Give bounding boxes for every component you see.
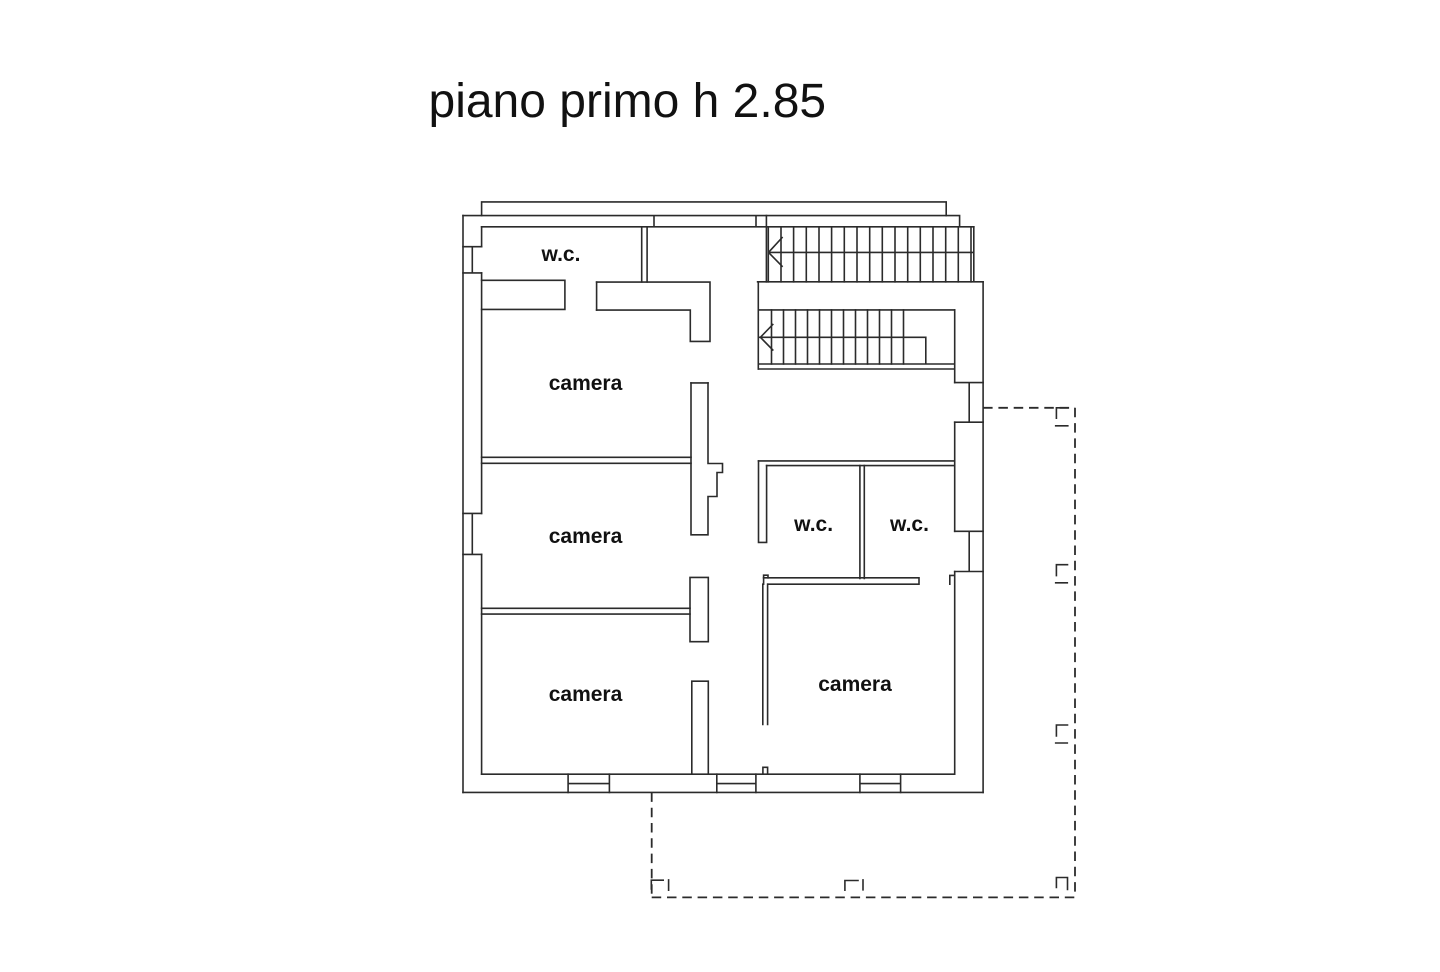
svg-text:camera: camera bbox=[549, 683, 623, 706]
svg-text:w.c.: w.c. bbox=[541, 243, 581, 266]
svg-text:camera: camera bbox=[549, 372, 623, 395]
svg-text:piano primo h 2.85: piano primo h 2.85 bbox=[429, 75, 827, 128]
svg-text:w.c.: w.c. bbox=[793, 513, 833, 536]
svg-text:camera: camera bbox=[549, 525, 623, 548]
svg-text:camera: camera bbox=[818, 673, 892, 696]
svg-text:w.c.: w.c. bbox=[889, 513, 929, 536]
